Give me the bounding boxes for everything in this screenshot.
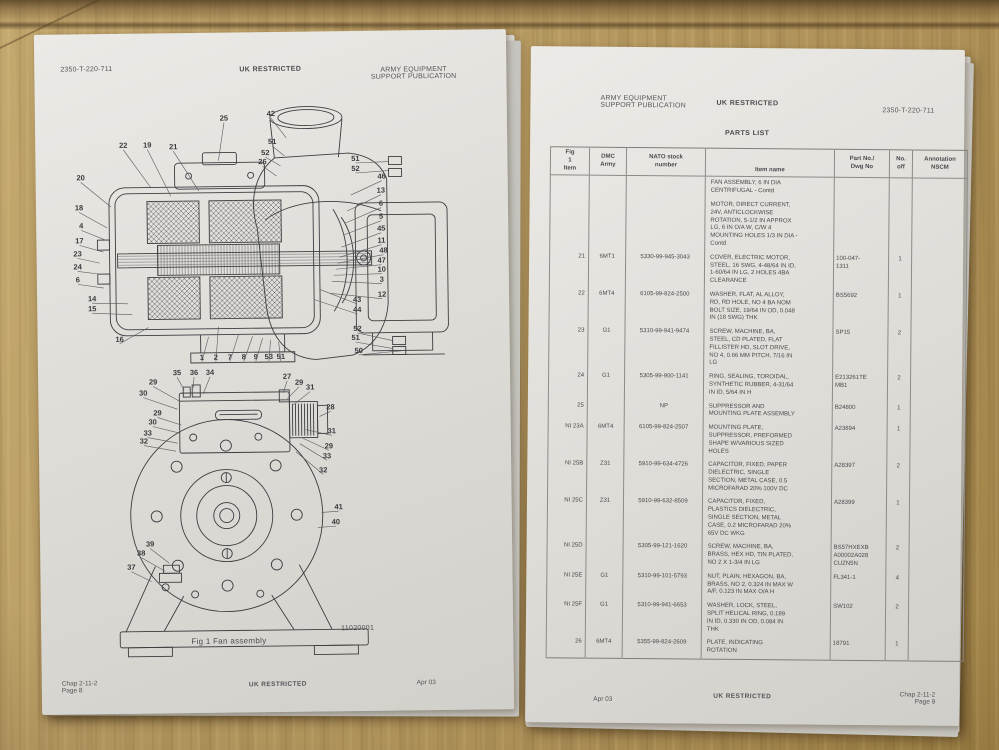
cell-item: 21	[549, 250, 588, 288]
callout-number: 42	[267, 109, 275, 118]
cell-qty: 2	[887, 461, 910, 498]
callout-number: 10	[378, 265, 386, 274]
cell-ann	[910, 402, 965, 424]
cell-dmc: 6MT4	[585, 636, 622, 658]
cell-ann	[909, 543, 964, 573]
column-header: Part No./ Dwg No	[834, 149, 889, 178]
cell-nato: 5330-99-945-3043	[625, 251, 704, 289]
footer-classification: UK RESTRICTED	[525, 691, 959, 702]
cell-qty: 1	[888, 290, 911, 327]
cell-name: SCREW, MACHINE, BA, BRASS, HEX HD, TIN P…	[702, 541, 831, 572]
cell-item	[550, 197, 589, 250]
callout-leader-line	[345, 208, 381, 223]
cell-name: WASHER, FLAT, AL ALLOY, RD, RD HOLE, NO …	[704, 289, 833, 327]
cell-nato: 5310-99-101-5793	[623, 570, 702, 600]
cell-nato: 6105-99-824-2500	[625, 288, 704, 326]
cell-ann	[912, 178, 967, 201]
parts-table-body: FAN ASSEMBLY, 6 IN DIA CENTRIFUGAL - Con…	[546, 175, 967, 661]
callout-number: 29	[325, 441, 333, 450]
parts-table-header-row: Fig 1 ItemDMC ArmyNATO stock numberItem …	[550, 147, 967, 179]
callout-number: 14	[88, 294, 97, 303]
cell-dmc: Z31	[586, 495, 623, 540]
parts-list-title: PARTS LIST	[530, 128, 964, 139]
table-row: NI 25EG15310-99-101-5793NUT, PLAIN, HEXA…	[547, 569, 964, 602]
cell-dmc: G1	[588, 325, 625, 370]
callout-number: 6	[76, 275, 80, 284]
footer-date: Apr 03	[417, 679, 436, 686]
callout-number: 29	[295, 378, 303, 387]
cell-qty	[889, 178, 912, 200]
callout-leader-line	[203, 377, 210, 394]
callout-number: 35	[173, 368, 181, 377]
callout-number: 45	[377, 224, 385, 233]
publication-title: ARMY EQUIPMENT SUPPORT PUBLICATION	[371, 66, 457, 81]
callout-leader-line	[283, 381, 287, 393]
callout-leader-line	[293, 392, 310, 405]
cell-qty: 2	[887, 372, 910, 402]
callout-number: 27	[283, 372, 291, 381]
cell-nato: 6105-99-824-2507	[624, 421, 703, 459]
callout-number: 30	[139, 389, 147, 398]
callout-number: 16	[115, 335, 123, 344]
callout-leader-line	[318, 526, 336, 527]
callout-number: 33	[323, 451, 331, 460]
callout-leader-line	[141, 557, 165, 571]
column-header: NATO stock number	[626, 147, 705, 176]
callout-number: 15	[88, 304, 96, 313]
cell-item: NI 25D	[547, 540, 586, 570]
callout-number: 19	[143, 140, 151, 149]
cell-qty: 1	[888, 253, 911, 290]
cell-part: B24800	[832, 401, 887, 423]
cell-name: PLATE, INDICATING ROTATION	[701, 637, 830, 660]
callout-number: 37	[127, 563, 135, 572]
cell-item: NI 25F	[546, 599, 585, 637]
table-row: NI 23A6MT46105-99-824-2507MOUNTING PLATE…	[548, 420, 965, 461]
callout-leader-line	[343, 221, 381, 235]
cell-dmc	[587, 399, 624, 421]
cell-qty: 2	[885, 601, 908, 638]
doc-number: 2350-T-220-711	[882, 107, 934, 114]
callout-leader-line	[173, 151, 198, 191]
cell-ann	[910, 373, 965, 403]
callout-number: 11	[377, 236, 385, 245]
callout-leader-line	[153, 386, 179, 401]
cell-ann	[910, 424, 965, 462]
callout-number: 7	[228, 353, 232, 362]
cell-qty: 1	[887, 402, 910, 424]
callout-number: 6	[379, 199, 383, 208]
cell-item: NI 25E	[547, 569, 586, 599]
callout-number: 52	[261, 148, 269, 157]
footer-classification: UK RESTRICTED	[42, 678, 514, 691]
cell-nato: 5305-99-900-1141	[624, 370, 703, 400]
cell-name: NUT, PLAIN, HEXAGON, BA, BRASS, NO 2, 0.…	[702, 570, 831, 601]
figure-caption: Fig 1 Fan assembly	[191, 636, 266, 646]
cell-dmc	[589, 198, 626, 251]
callout-number: 9	[254, 352, 258, 361]
callout-number: 24	[73, 262, 82, 271]
callout-number: 40	[332, 517, 340, 526]
figure-ref-number: 11020001	[341, 625, 374, 632]
callout-number: 21	[169, 142, 177, 151]
callout-number: 25	[220, 114, 228, 123]
callout-number: 12	[378, 290, 386, 299]
callout-number: 28	[326, 402, 334, 411]
cell-part: A28397	[832, 460, 887, 498]
callout-number: 17	[75, 236, 83, 245]
table-row: 226MT46105-99-824-2500WASHER, FLAT, AL A…	[549, 287, 966, 328]
cell-qty: 4	[886, 572, 909, 602]
callout-number: 4	[79, 221, 84, 230]
callout-leader-line	[320, 289, 357, 304]
cell-qty: 1	[886, 498, 909, 543]
callout-number: 22	[119, 141, 127, 150]
callout-leader-line	[123, 149, 150, 187]
cell-qty: 2	[888, 327, 911, 372]
callout-number: 39	[146, 539, 154, 548]
callout-leader-line	[358, 333, 393, 341]
callout-leader-line	[92, 313, 132, 315]
cell-dmc: G1	[585, 599, 622, 637]
column-header: DMC Army	[589, 147, 626, 176]
callout-number: 2	[214, 353, 218, 362]
cell-part: 100-047- 1311	[833, 253, 888, 291]
footer-chapter-page: Chap 2-11-2 Page 9	[900, 691, 936, 705]
right-page-parts-list-sheet: ARMY EQUIPMENT SUPPORT PUBLICATION UK RE…	[525, 46, 965, 726]
cell-name: SCREW, MACHINE, BA, STEEL, CD PLATED, FL…	[704, 326, 833, 372]
cell-name: RING, SEALING, TOROIDAL, SYNTHETIC RUBBE…	[703, 371, 832, 402]
cell-ann	[910, 461, 965, 499]
callout-number: 32	[319, 465, 327, 474]
cell-part: BS5692	[833, 290, 888, 328]
callout-leader-line	[271, 118, 286, 138]
callout-number: 51	[351, 333, 359, 342]
callout-leader-line	[334, 274, 382, 276]
cell-item	[550, 175, 589, 197]
cell-nato	[626, 176, 705, 199]
callout-leader-line	[341, 233, 381, 247]
cell-name: CAPACITOR, FIXED, PAPER DIELECTRIC, SING…	[703, 459, 832, 497]
cell-name: WASHER, LOCK, STEEL, SPLIT HELICAL RING,…	[701, 600, 830, 638]
callout-leader-line	[158, 417, 182, 425]
cell-part: SW102	[830, 601, 885, 639]
table-row: 24G15305-99-900-1141RING, SEALING, TOROI…	[548, 369, 965, 402]
callout-number: 51	[351, 154, 359, 163]
callout-number: 20	[76, 173, 84, 182]
cell-part: A28399	[831, 497, 886, 542]
callout-leader-line	[150, 548, 169, 563]
cell-ann	[911, 328, 966, 373]
cell-dmc: 6MT4	[587, 421, 624, 459]
callout-number: 52	[351, 164, 359, 173]
cell-name: MOTOR, DIRECT CURRENT, 24V, ANTICLOCKWIS…	[705, 199, 834, 253]
column-header: Fig 1 Item	[550, 147, 589, 176]
cell-dmc	[586, 540, 623, 570]
callout-number: 51	[277, 352, 285, 361]
cell-item: 24	[548, 369, 587, 399]
cell-qty: 1	[885, 639, 908, 661]
cell-part: BS57HXEXB A00002A028 CUZN5N	[831, 542, 886, 572]
cell-qty: 2	[886, 543, 909, 573]
cell-part: SP15	[833, 327, 888, 372]
cell-nato: NP	[624, 399, 703, 421]
cell-dmc: Z31	[587, 458, 624, 496]
callout-number: 46	[377, 172, 385, 181]
cell-dmc: G1	[587, 370, 624, 400]
cell-item: 23	[549, 324, 588, 369]
fan-assembly-figure: 2219212018417232461415162542515226515246…	[50, 97, 497, 662]
cell-ann	[909, 572, 964, 602]
cell-ann	[908, 602, 963, 640]
cell-ann	[909, 498, 964, 543]
left-page-figure-sheet: 2350-T-220-711 UK RESTRICTED ARMY EQUIPM…	[34, 29, 514, 715]
cell-part: A23894	[832, 423, 887, 461]
cell-item: 25	[548, 399, 587, 421]
callout-number: 26	[258, 157, 266, 166]
callout-number: 44	[353, 305, 362, 314]
callout-number: 30	[148, 417, 156, 426]
callout-number: 23	[73, 249, 81, 258]
callout-leader-line	[193, 377, 194, 388]
callout-number: 52	[353, 324, 361, 333]
cell-dmc: 6MT1	[588, 250, 625, 288]
callout-leader-line	[319, 411, 330, 416]
callout-leader-line	[147, 149, 171, 196]
cell-name: SUPPRESSOR AND MOUNTING PLATE ASSEMBLY	[703, 400, 832, 423]
callout-number: 34	[206, 368, 215, 377]
cell-name: MOUNTING PLATE, SUPPRESSOR, PREFORMED SH…	[703, 422, 832, 460]
callout-number: 43	[353, 295, 361, 304]
callout-leader-line	[148, 437, 178, 443]
callout-number: 1	[200, 353, 204, 362]
table-row: NI 25CZ315910-99-632-8509CAPACITOR, FIXE…	[547, 495, 964, 544]
cell-part: E213261TE MB1	[832, 372, 887, 402]
cell-nato: 5310-99-941-9474	[625, 325, 704, 371]
cell-nato: 5310-99-941-6653	[622, 599, 701, 637]
cell-part: FL341-1	[831, 572, 886, 602]
callout-leader-line	[355, 162, 388, 163]
cell-nato	[626, 198, 705, 251]
cell-nato: 5305-99-121-1620	[623, 540, 702, 570]
cell-item: NI 23A	[548, 420, 587, 458]
callout-number: 36	[190, 368, 198, 377]
table-row: NI 25FG15310-99-941-6653WASHER, LOCK, ST…	[546, 599, 963, 640]
callout-leader-line	[177, 377, 184, 390]
cell-dmc: 6MT4	[588, 288, 625, 326]
cell-nato: 5910-99-634-4726	[624, 458, 703, 496]
callout-leader-line	[81, 182, 111, 207]
cell-item: 22	[549, 287, 588, 325]
callout-number: 29	[149, 377, 157, 386]
cell-ann	[912, 200, 967, 253]
cell-item: NI 25C	[547, 495, 586, 540]
callout-number: 38	[137, 549, 145, 558]
callout-leader-line	[131, 572, 151, 582]
cell-name: CAPACITOR, FIXED, PLASTICS DIELECTRIC, S…	[702, 496, 831, 542]
cell-item: NI 25B	[548, 458, 587, 496]
table-row: NI 25BZ315910-99-634-4726CAPACITOR, FIXE…	[548, 458, 965, 499]
callout-number: 31	[327, 426, 335, 435]
table-row: 216MT15330-99-945-3043COVER, ELECTRIC MO…	[549, 250, 966, 291]
parts-list-table: Fig 1 ItemDMC ArmyNATO stock numberItem …	[546, 146, 968, 662]
callout-number: 51	[268, 137, 276, 146]
table-row: 23G15310-99-941-9474SCREW, MACHINE, BA, …	[549, 324, 966, 373]
callout-number: 41	[334, 502, 342, 511]
table-row: 266MT45355-99-824-2609PLATE, INDICATING …	[546, 636, 963, 662]
callout-leader-line	[332, 281, 382, 285]
callout-leader-line	[78, 271, 100, 274]
callout-number: 8	[242, 352, 246, 361]
callout-number: 48	[379, 246, 387, 255]
cell-ann	[908, 639, 963, 662]
photo-of-documents-on-desk: { "photo": { "wood_color": "#b89c63", "p…	[0, 0, 999, 750]
callout-number: 29	[153, 408, 161, 417]
callout-leader-line	[79, 245, 103, 252]
column-header: Annotation NSCM	[912, 150, 967, 179]
cell-dmc	[589, 176, 626, 198]
cell-name: FAN ASSEMBLY, 6 IN DIA CENTRIFUGAL - Con…	[705, 177, 834, 200]
callout-number: 31	[306, 383, 314, 392]
table-row: MOTOR, DIRECT CURRENT, 24V, ANTICLOCKWIS…	[550, 197, 967, 253]
column-header: No. off	[889, 150, 912, 179]
callout-number: 47	[377, 256, 385, 265]
cell-part: 18791	[830, 638, 885, 661]
cell-qty	[889, 200, 912, 253]
cell-part	[834, 178, 889, 201]
cell-ann	[911, 290, 966, 328]
callout-number: 50	[355, 346, 363, 355]
cell-ann	[911, 253, 966, 291]
cell-nato: 5910-99-632-8509	[623, 495, 702, 541]
cell-qty: 1	[887, 423, 910, 460]
parts-table-head: Fig 1 ItemDMC ArmyNATO stock numberItem …	[550, 147, 967, 179]
cell-nato: 5355-99-824-2609	[622, 636, 701, 659]
front-view-callouts: 3536342729312930293033322831293332414039…	[125, 366, 344, 582]
callout-number: 5	[379, 212, 383, 221]
cell-item: 26	[546, 636, 585, 658]
callout-number: 3	[380, 275, 384, 284]
callout-leader-line	[78, 284, 104, 288]
cell-name: COVER, ELECTRIC MOTOR, STEEL, 16 SWG, 4-…	[704, 251, 833, 289]
callout-number: 32	[140, 437, 148, 446]
callout-leader-line	[322, 511, 339, 512]
cell-part	[834, 200, 889, 253]
callout-leader-line	[218, 123, 224, 161]
table-row: NI 25D5305-99-121-1620SCREW, MACHINE, BA…	[547, 540, 964, 573]
callout-leader-line	[153, 426, 180, 433]
callout-number: 13	[377, 186, 385, 195]
column-header: Item name	[705, 148, 834, 178]
callout-number: 18	[75, 203, 83, 212]
callout-number: 53	[265, 352, 273, 361]
footer-page: Page 9	[900, 698, 936, 705]
cell-dmc: G1	[586, 569, 623, 599]
callout-leader-line	[81, 230, 105, 240]
